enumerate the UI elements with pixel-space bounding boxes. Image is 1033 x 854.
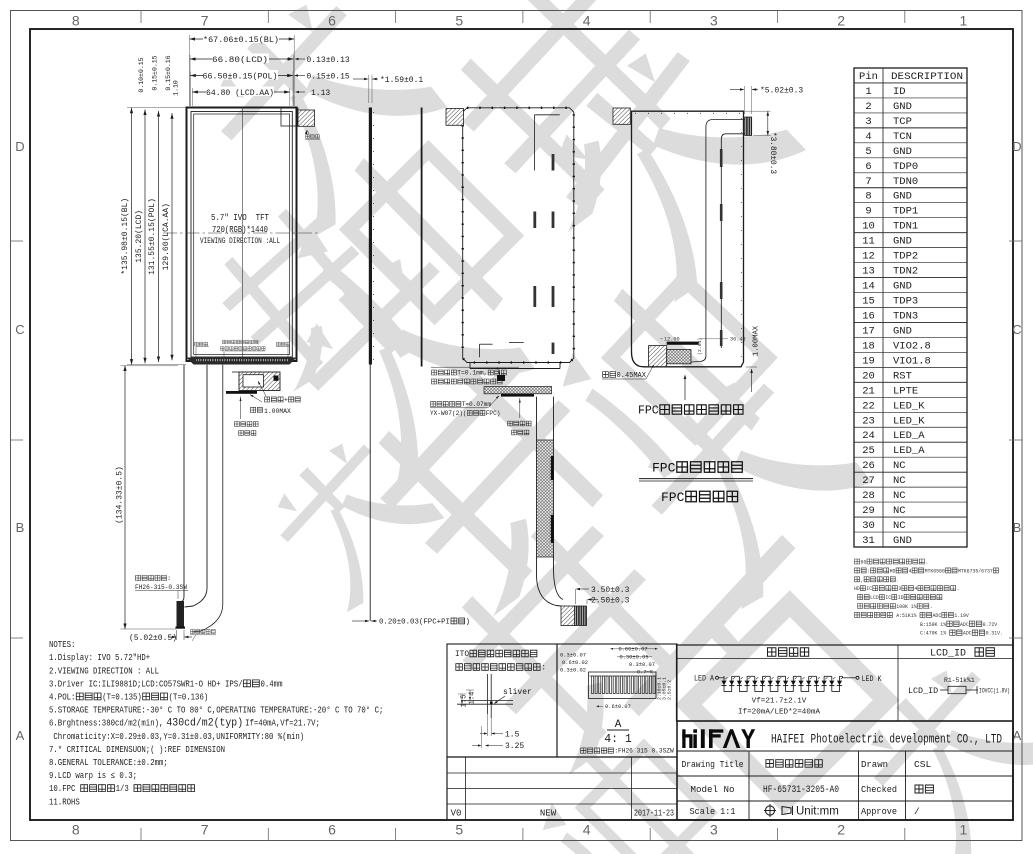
svg-text:6.Brghtness:380cd/m2(min),: 6.Brghtness:380cd/m2(min), [49,718,163,729]
svg-text:LED_A: LED_A [893,445,925,457]
svg-text:0.10±0.15: 0.10±0.15 [138,57,145,92]
svg-text:FPC): FPC) [486,410,501,417]
svg-text:0.6±0.07: 0.6±0.07 [605,704,631,710]
svg-text:1.19V: 1.19V [954,612,969,619]
svg-text:6G: 6G [861,559,867,566]
svg-text:4: 1: 4: 1 [604,733,632,746]
svg-text:TDN0: TDN0 [893,176,918,188]
svg-text:3: 3 [710,13,718,29]
svg-text:8: 8 [865,191,871,203]
svg-text:ID: ID [898,594,904,601]
svg-text:Scale 1:1: Scale 1:1 [690,806,736,817]
svg-text:LPTE: LPTE [893,385,918,397]
svg-text:0.15±0.15: 0.15±0.15 [307,73,350,82]
svg-text:1.5: 1.5 [505,731,520,740]
svg-text:TDP3: TDP3 [893,296,918,308]
svg-text:Approve: Approve [861,806,897,817]
svg-text:28: 28 [862,490,875,502]
svg-text:FH26-315-0.3SW: FH26-315-0.3SW [135,584,187,591]
svg-text:NC: NC [893,475,906,487]
svg-text:21: 21 [862,385,875,397]
svg-text:4.POL:: 4.POL: [49,692,75,703]
svg-text:1.00MAX: 1.00MAX [264,408,291,415]
svg-text:10.FPC: 10.FPC [49,783,80,794]
svg-text:0.15±0.16: 0.15±0.16 [165,55,172,90]
svg-text:RST: RST [893,370,912,382]
svg-text:2.5±0.2: 2.5±0.2 [667,680,673,700]
svg-text:13: 13 [862,266,875,278]
svg-text:TDP2: TDP2 [893,251,918,263]
svg-text:NC: NC [893,490,906,502]
svg-text:LED K: LED K [862,675,882,684]
svg-text:A: A [1013,728,1022,743]
svg-text:0.3±0.07: 0.3±0.07 [560,653,586,659]
svg-text:+: + [284,397,288,404]
svg-text:6: 6 [865,161,871,173]
svg-text:7: 7 [201,13,209,29]
svg-text:NC: NC [893,520,906,532]
svg-text:1/3: 1/3 [116,783,134,794]
svg-text:0.3±0.07: 0.3±0.07 [629,662,655,668]
svg-text:T=0.1mm,: T=0.1mm, [457,370,487,377]
svg-text:D: D [15,139,24,154]
svg-text:24: 24 [862,430,875,442]
svg-text:YX-W07(2)(: YX-W07(2)( [430,410,467,417]
svg-text:7: 7 [865,176,871,188]
svg-text:NC: NC [893,460,906,472]
svg-text:HD: HD [890,567,896,574]
svg-text:14: 14 [862,281,875,293]
svg-text:GND: GND [893,236,912,248]
svg-text:19: 19 [862,355,875,367]
svg-text:10: 10 [862,221,875,233]
svg-text:Chromaticity:X=0.29±0.03,Y=0.3: Chromaticity:X=0.29±0.03,Y=0.31±0.03,UNI… [49,731,304,742]
svg-text:0.60±0.07: 0.60±0.07 [618,647,647,653]
svg-text:.: . [930,603,933,610]
svg-text:1.13: 1.13 [311,89,330,98]
svg-text:4: 4 [583,822,591,838]
svg-text:VIO2.8: VIO2.8 [893,340,931,352]
svg-text:LED_K: LED_K [893,400,925,412]
svg-text:ADC: ADC [963,630,972,637]
svg-text:*3.80±0.3: *3.80±0.3 [768,132,776,174]
svg-text:MTK6580: MTK6580 [925,567,946,574]
svg-text:25: 25 [862,445,875,457]
svg-text:26: 26 [862,460,875,472]
svg-text:FPC: FPC [652,460,676,475]
svg-text:12.00: 12.00 [664,337,680,343]
svg-text:(T=0.135): (T=0.135) [102,692,142,703]
svg-text:*67.06±0.15(BL): *67.06±0.15(BL) [203,36,279,45]
svg-text:FPC: FPC [638,404,659,417]
svg-text:.: . [957,585,960,592]
svg-text:20: 20 [862,370,875,382]
svg-text::: : [867,567,870,574]
svg-text:3: 3 [710,822,718,838]
svg-text:GND: GND [893,281,912,293]
svg-text:(134.33±0.5): (134.33±0.5) [116,466,125,524]
svg-text:4: 4 [909,567,912,574]
svg-text:135.20(LCD): 135.20(LCD) [135,210,144,263]
svg-text:VIO1.8: VIO1.8 [893,355,931,367]
svg-text:V0: V0 [451,809,462,819]
svg-text:8: 8 [72,13,80,29]
svg-text:64.80 (LCD.AA): 64.80 (LCD.AA) [206,89,274,98]
svg-text:(2.04): (2.04) [697,338,703,355]
svg-text:NOTES:: NOTES: [49,639,75,650]
svg-text:NC: NC [893,505,906,517]
svg-text:6: 6 [328,13,336,29]
svg-text:MTK6735/6737: MTK6735/6737 [958,567,993,574]
svg-text:1.Display: IVO 5.72"HD+: 1.Display: IVO 5.72"HD+ [49,652,150,663]
svg-text:11.ROHS: 11.ROHS [49,796,80,807]
svg-text:Vf=21.7±2.1V: Vf=21.7±2.1V [752,698,807,706]
svg-text:LCD: LCD [870,594,879,601]
svg-text:LED_A: LED_A [893,430,925,442]
svg-text:LCD_ID: LCD_ID [908,686,938,696]
svg-text:Drawn: Drawn [861,759,888,770]
svg-text:A:51K1%: A:51K1% [893,612,919,619]
svg-text:0.15±0.15: 0.15±0.15 [152,55,159,90]
svg-text:27: 27 [862,475,875,487]
svg-text:0.3±0.02: 0.3±0.02 [560,668,586,674]
svg-text:6: 6 [328,822,336,838]
svg-text:ID: ID [893,86,906,98]
svg-text:LCD_ID: LCD_ID [930,649,972,660]
svg-text:ADC: ADC [960,621,969,628]
svg-text:4: 4 [583,13,591,29]
svg-text:CSL: CSL [914,759,932,770]
svg-text:If=40mA,Vf=21.7V;: If=40mA,Vf=21.7V; [245,718,320,729]
svg-text:IC: IC [866,585,872,592]
svg-text:): ) [466,619,470,627]
svg-text:8.GENERAL TOLERANCE:±0.2mm;: 8.GENERAL TOLERANCE:±0.2mm; [49,757,168,768]
svg-text:0.45MAX: 0.45MAX [617,372,647,380]
svg-text:30: 30 [862,520,875,532]
svg-text:66.80(LCD): 66.80(LCD) [212,56,268,65]
svg-text:0.20±0.03(FPC+PI: 0.20±0.03(FPC+PI [379,619,450,627]
svg-text:A: A [615,719,622,731]
svg-text:11: 11 [862,236,875,248]
svg-text:12: 12 [862,251,875,263]
svg-text:DESCRIPTION: DESCRIPTION [891,71,963,83]
svg-text:(T=0.136): (T=0.136) [169,692,209,703]
svg-text::: : [541,665,546,673]
svg-text:1: 1 [865,86,871,98]
svg-text:430cd/m2(typ): 430cd/m2(typ) [166,718,243,730]
svg-text:D: D [1012,139,1021,154]
svg-text:B:150K 1%: B:150K 1% [920,621,946,628]
svg-text:TDP1: TDP1 [893,206,918,218]
svg-text:15: 15 [862,296,875,308]
svg-text:1.10: 1.10 [173,80,180,96]
svg-text:GND: GND [893,101,912,113]
svg-text:7.* CRITICAL DIMENSUON;( ):REF: 7.* CRITICAL DIMENSUON;( ):REF DIMENSION [49,744,225,755]
svg-text:3.25: 3.25 [505,742,524,751]
svg-text:R1-51k%1: R1-51k%1 [944,677,975,684]
svg-text:5: 5 [865,146,871,158]
svg-text:5.7" IVO TFT: 5.7" IVO TFT [211,213,269,223]
svg-text:,: , [861,576,864,583]
svg-text:2.50±0.3: 2.50±0.3 [591,597,630,606]
svg-text:ITO: ITO [455,651,469,659]
svg-text:A: A [16,728,25,743]
svg-text:1: 1 [960,822,968,838]
svg-text:129.60(LCA.AA): 129.60(LCA.AA) [162,203,171,270]
svg-text:5: 5 [455,822,463,838]
svg-text:*5.02±0.3: *5.02±0.3 [760,87,803,96]
svg-text:4: 4 [865,131,871,143]
svg-text:GND: GND [893,325,912,337]
svg-text:2: 2 [837,822,845,838]
svg-text:T=0.07mm: T=0.07mm [462,401,492,408]
svg-text:17: 17 [862,325,875,337]
svg-text:GND: GND [893,191,912,203]
svg-text:LED A: LED A [694,675,714,684]
svg-text:IOVCC(1.8V): IOVCC(1.8V) [979,688,1010,695]
svg-text:.: . [896,576,899,583]
svg-text:0.7~%: 0.7~% [637,670,654,676]
svg-text:7: 7 [201,822,209,838]
svg-text:FPC: FPC [661,490,685,505]
svg-text:(5.02±0.5): (5.02±0.5) [129,634,177,643]
svg-text:3.50±0.3: 3.50±0.3 [591,586,630,595]
svg-text:VIEWING DIRECTION :ALL: VIEWING DIRECTION :ALL [200,236,280,246]
svg-text:66.50±0.15(POL): 66.50±0.15(POL) [203,73,278,82]
svg-text:1: 1 [960,13,968,29]
svg-text:Pin: Pin [859,71,878,83]
svg-text:sliver: sliver [503,688,532,697]
svg-text:HAIFEI Photoelectric developme: HAIFEI Photoelectric development CO., LT… [771,732,1002,747]
svg-text:9.LCD warp is ≤ 0.3;: 9.LCD warp is ≤ 0.3; [49,770,137,781]
svg-text::: : [167,575,171,582]
svg-text:2017-11-23: 2017-11-23 [634,809,674,819]
svg-text:TDP0: TDP0 [893,161,918,173]
svg-text:C: C [1012,322,1021,337]
svg-text:TCP: TCP [893,116,912,128]
svg-text:LED_K: LED_K [893,415,925,427]
svg-text:0.13±0.13: 0.13±0.13 [307,56,350,65]
svg-text:*1.59±0.1: *1.59±0.1 [380,76,423,85]
svg-text:100K 1%: 100K 1% [896,603,917,610]
svg-text:IC: IC [885,594,891,601]
svg-text:GND: GND [893,535,912,547]
svg-text:Checked: Checked [861,784,897,795]
svg-text:0.30±0.05: 0.30±0.05 [619,655,648,661]
svg-text:C: C [15,322,24,337]
svg-text::FH26 315 0.3SZW: :FH26 315 0.3SZW [614,748,674,755]
svg-text:5: 5 [455,13,463,29]
svg-text:9: 9 [865,206,871,218]
svg-text:TCN: TCN [893,131,912,143]
svg-text:HF-65731-3205-A0: HF-65731-3205-A0 [763,785,839,796]
svg-text:.: . [925,559,928,566]
svg-text:0.6±0.02: 0.6±0.02 [562,660,588,666]
svg-text:1.00MAX: 1.00MAX [753,325,761,356]
svg-text:29: 29 [862,505,875,517]
svg-text:131.55±0.15(POL): 131.55±0.15(POL) [148,198,157,275]
svg-text:2: 2 [865,101,871,113]
svg-text:HD: HD [854,585,860,592]
svg-text:3.Driver IC:ILI9881D;LCD:CO57S: 3.Driver IC:ILI9881D;LCD:CO57SWR1-O HD+ … [49,678,243,689]
svg-text:B: B [16,520,25,535]
svg-text:720(RGB)*1440: 720(RGB)*1440 [212,225,268,235]
svg-text:GND: GND [893,146,912,158]
svg-text:C:470K 1%: C:470K 1% [920,630,949,637]
svg-text:Drawing Title: Drawing Title [682,759,744,770]
svg-text:If=20mA/LED*2=40mA: If=20mA/LED*2=40mA [738,709,820,717]
svg-text:16: 16 [862,310,875,322]
svg-text:TDN1: TDN1 [893,221,918,233]
svg-text:8: 8 [72,822,80,838]
svg-text:4: 4 [914,585,917,592]
svg-text:31: 31 [862,535,875,547]
svg-text:/: / [914,806,920,817]
svg-text:5.STORAGE TEMPERATURE:-30° C T: 5.STORAGE TEMPERATURE:-30° C TO 80° C,OP… [49,705,383,716]
svg-text:22: 22 [862,400,875,412]
svg-text:Unit:mm: Unit:mm [796,806,839,818]
svg-text:TDN2: TDN2 [893,266,918,278]
svg-text:B: B [1013,520,1022,535]
svg-text:3: 3 [898,585,901,592]
svg-text:Model No: Model No [691,784,735,795]
svg-text:23: 23 [862,415,875,427]
svg-text:3: 3 [865,116,871,128]
svg-text:0.72V: 0.72V [983,621,998,628]
svg-text:36.43: 36.43 [730,337,746,343]
svg-text:0.4mm: 0.4mm [260,678,282,689]
svg-text:TDN3: TDN3 [893,310,918,322]
svg-text:2: 2 [837,13,845,29]
svg-text:0.31V.: 0.31V. [986,630,1003,637]
svg-text:ADC: ADC [933,612,942,619]
svg-text:NEW: NEW [540,809,557,819]
svg-text:*135.98±0.15(BL): *135.98±0.15(BL) [121,198,130,275]
svg-text:2.VIEWING DIRECTION : ALL: 2.VIEWING DIRECTION : ALL [49,665,159,676]
svg-text:18: 18 [862,340,875,352]
